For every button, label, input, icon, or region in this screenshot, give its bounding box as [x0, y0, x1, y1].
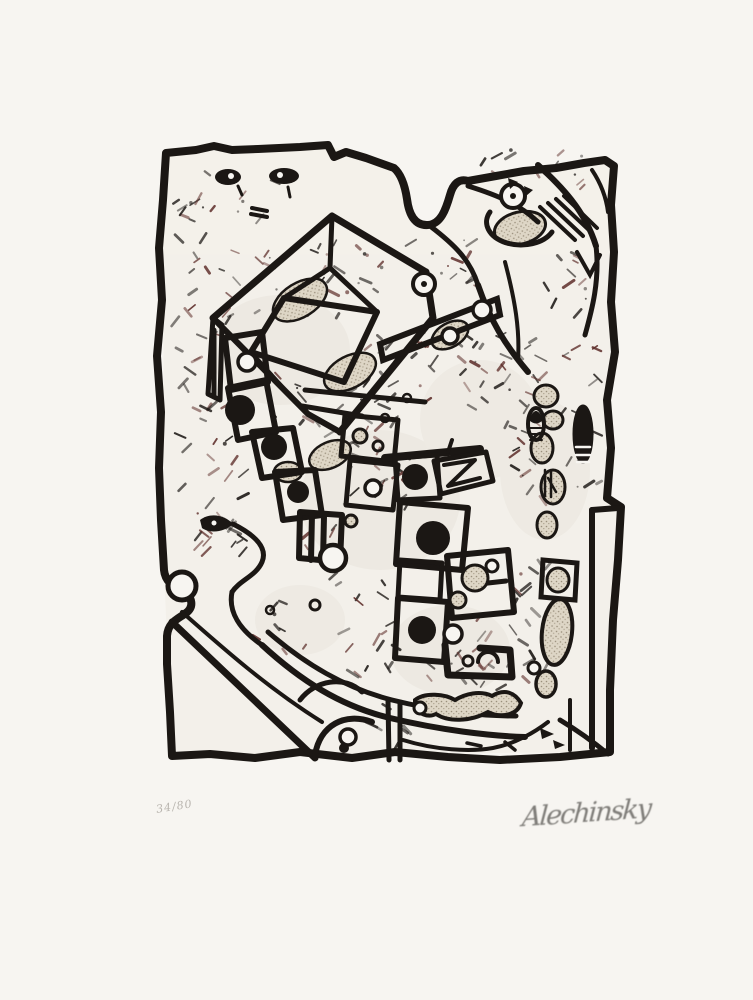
artwork-print [0, 0, 753, 1000]
paper-sheet: 34/80 Alechinsky [0, 0, 753, 1000]
